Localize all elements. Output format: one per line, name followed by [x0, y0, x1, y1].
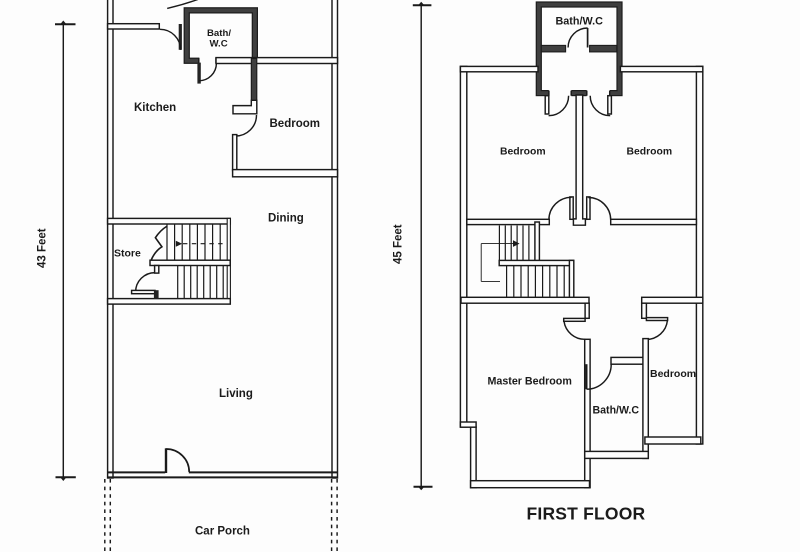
svg-text:W.C: W.C [210, 38, 228, 49]
svg-text:Bedroom: Bedroom [627, 147, 673, 158]
svg-text:Kitchen: Kitchen [134, 102, 176, 114]
svg-text:Master Bedroom: Master Bedroom [488, 376, 572, 388]
svg-text:Dining: Dining [268, 213, 304, 225]
svg-text:45 Feet: 45 Feet [393, 224, 405, 264]
svg-text:Bedroom: Bedroom [500, 147, 546, 158]
svg-text:Bedroom: Bedroom [650, 368, 696, 380]
svg-text:Living: Living [219, 388, 253, 400]
svg-text:43 Feet: 43 Feet [37, 228, 49, 268]
svg-text:Bath/: Bath/ [207, 28, 231, 39]
svg-text:Store: Store [114, 248, 141, 260]
svg-text:Bath/W.C: Bath/W.C [593, 404, 640, 416]
svg-text:FIRST FLOOR: FIRST FLOOR [527, 504, 646, 524]
svg-text:Car Porch: Car Porch [195, 526, 250, 538]
svg-text:Bedroom: Bedroom [270, 118, 320, 130]
svg-text:Bath/W.C: Bath/W.C [556, 16, 604, 28]
